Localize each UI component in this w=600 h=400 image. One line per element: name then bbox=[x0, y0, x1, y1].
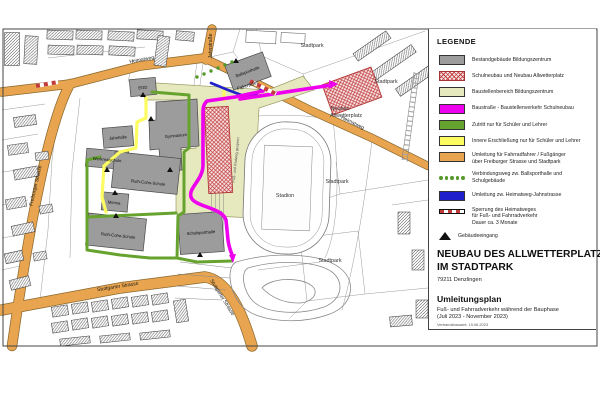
house bbox=[60, 336, 91, 346]
house bbox=[7, 143, 28, 156]
legend-item-label: Verbindungsweg zw. Ballsporthalle und Sc… bbox=[472, 171, 592, 184]
house bbox=[151, 310, 168, 322]
label-jahnstrasse: Jahnstraße bbox=[208, 33, 214, 58]
legend-item-label: Baustellenbereich Bildungszentrum bbox=[472, 89, 553, 96]
house bbox=[24, 36, 38, 65]
legend-swatch-triangle bbox=[439, 232, 451, 240]
legend-swatch-solid bbox=[439, 120, 465, 130]
house bbox=[71, 302, 88, 314]
legend-item-label: Zutritt nur für Schüler und Lehrer bbox=[472, 122, 547, 129]
legend-item-label: Schulneubau und Neubau Allwetterplatz bbox=[472, 73, 564, 80]
legend-item-4: Zutritt nur für Schüler und Lehrer bbox=[439, 120, 592, 130]
house bbox=[33, 251, 47, 261]
house bbox=[173, 299, 188, 323]
house bbox=[398, 212, 410, 234]
legend-items: Bestandgebäude BildungszentrumSchulneuba… bbox=[437, 55, 592, 240]
label-neubau-allwetterplatz-1: Neubau bbox=[331, 106, 350, 112]
plan-title-line1: NEUBAU DES ALLWETTERPLATZES bbox=[437, 249, 592, 262]
stadium bbox=[242, 121, 333, 256]
house bbox=[39, 204, 53, 214]
legend-item-10: Gebäudeeingang bbox=[439, 232, 592, 240]
plan-description: Fuß- und Fahrradverkehr während der Baup… bbox=[437, 307, 592, 313]
legend-item-label: Baustraße - Baustellenverkehr Schulneuba… bbox=[472, 105, 574, 112]
house bbox=[9, 276, 31, 291]
house bbox=[71, 318, 88, 330]
legend-panel: LEGENDE Bestandgebäude BildungszentrumSc… bbox=[428, 29, 596, 330]
house bbox=[131, 312, 148, 324]
label-stadion: Stadion bbox=[276, 193, 294, 199]
house bbox=[111, 297, 128, 309]
plan-address: 79211 Denzlingen bbox=[437, 277, 592, 283]
legend-item-7: Verbindungsweg zw. Ballsporthalle und Sc… bbox=[439, 171, 592, 184]
house bbox=[51, 305, 68, 317]
legend-swatch-solid bbox=[439, 87, 465, 97]
plan-issuer: Verbandsbauamt, 19.06.2023 bbox=[437, 322, 592, 327]
legend-item-0: Bestandgebäude Bildungszentrum bbox=[439, 55, 592, 65]
house bbox=[109, 46, 135, 56]
house bbox=[131, 295, 148, 307]
legend-item-2: Baustellenbereich Bildungszentrum bbox=[439, 87, 592, 97]
house bbox=[372, 45, 416, 80]
legend-item-label: Umleitung für Fahrradfahrer / Fußgänger … bbox=[472, 152, 566, 165]
house bbox=[35, 151, 49, 161]
house bbox=[140, 330, 171, 340]
legend-swatch-crosshatch bbox=[439, 71, 465, 81]
legend-swatch-solid bbox=[439, 55, 465, 65]
house bbox=[48, 45, 74, 55]
label-egd: EGD bbox=[138, 85, 147, 91]
legend-item-label: Sperrung des Heimatweges für Fuß- und Fa… bbox=[472, 207, 537, 227]
legend-item-5: Innere Erschließung nur für Schüler und … bbox=[439, 136, 592, 146]
house bbox=[108, 31, 134, 41]
legend-swatch-solid bbox=[439, 152, 465, 162]
plan-title-line2: IM STADTPARK bbox=[437, 262, 592, 275]
legend-swatch-solid bbox=[439, 104, 465, 114]
house bbox=[77, 45, 103, 55]
label-stadtpark-2: Stadtpark bbox=[374, 79, 397, 85]
label-stadtpark-4: Stadtpark bbox=[318, 258, 341, 264]
legend-item-label: Gebäudeeingang bbox=[458, 233, 498, 240]
legend-item-9: Sperrung des Heimatweges für Fuß- und Fa… bbox=[439, 207, 592, 227]
house bbox=[353, 31, 391, 61]
house bbox=[51, 321, 68, 333]
legend-item-8: Umleitung zw. Heimatweg-Jahnstrasse bbox=[439, 191, 592, 201]
house bbox=[47, 30, 73, 40]
schulneubau-area bbox=[204, 106, 232, 193]
label-stadtpark-3: Stadtpark bbox=[325, 179, 348, 185]
park-loop-paths bbox=[175, 255, 351, 321]
outline-buildings bbox=[246, 30, 306, 44]
legend-title: LEGENDE bbox=[437, 37, 592, 46]
plan-sheet: JahnstraßeHeimatwegHeimatwegFreiburger S… bbox=[0, 0, 600, 400]
legend-swatch-barrier bbox=[439, 209, 465, 214]
house bbox=[111, 314, 128, 326]
house bbox=[5, 33, 20, 66]
house bbox=[390, 315, 413, 327]
house bbox=[412, 250, 424, 270]
house bbox=[176, 31, 195, 42]
label-neubau-allwetterplatz-2: Allwetterplatz bbox=[330, 113, 362, 119]
house bbox=[151, 293, 168, 305]
legend-item-label: Bestandgebäude Bildungszentrum bbox=[472, 57, 551, 64]
legend-swatch-dots bbox=[439, 173, 465, 183]
legend-item-6: Umleitung für Fahrradfahrer / Fußgänger … bbox=[439, 152, 592, 165]
legend-swatch-solid bbox=[439, 191, 465, 201]
house bbox=[416, 300, 428, 318]
house bbox=[91, 300, 108, 312]
house bbox=[91, 316, 108, 328]
house bbox=[76, 30, 102, 40]
legend-item-3: Baustraße - Baustellenverkehr Schulneuba… bbox=[439, 104, 592, 114]
legend-swatch-solid bbox=[439, 136, 465, 146]
building-ruth-cohn-schule-1 bbox=[111, 152, 180, 195]
house bbox=[100, 333, 131, 343]
plan-period: (Juli 2023 - November 2023) bbox=[437, 314, 592, 320]
title-block: NEUBAU DES ALLWETTERPLATZES IM STADTPARK… bbox=[437, 249, 592, 327]
house bbox=[13, 115, 36, 128]
legend-item-label: Umleitung zw. Heimatweg-Jahnstrasse bbox=[472, 192, 561, 199]
label-stadtpark-1: Stadtpark bbox=[300, 43, 323, 49]
legend-item-1: Schulneubau und Neubau Allwetterplatz bbox=[439, 71, 592, 81]
house bbox=[5, 196, 26, 209]
legend-item-label: Innere Erschließung nur für Schüler und … bbox=[472, 138, 580, 145]
plan-subtitle: Umleitungsplan bbox=[437, 294, 592, 304]
